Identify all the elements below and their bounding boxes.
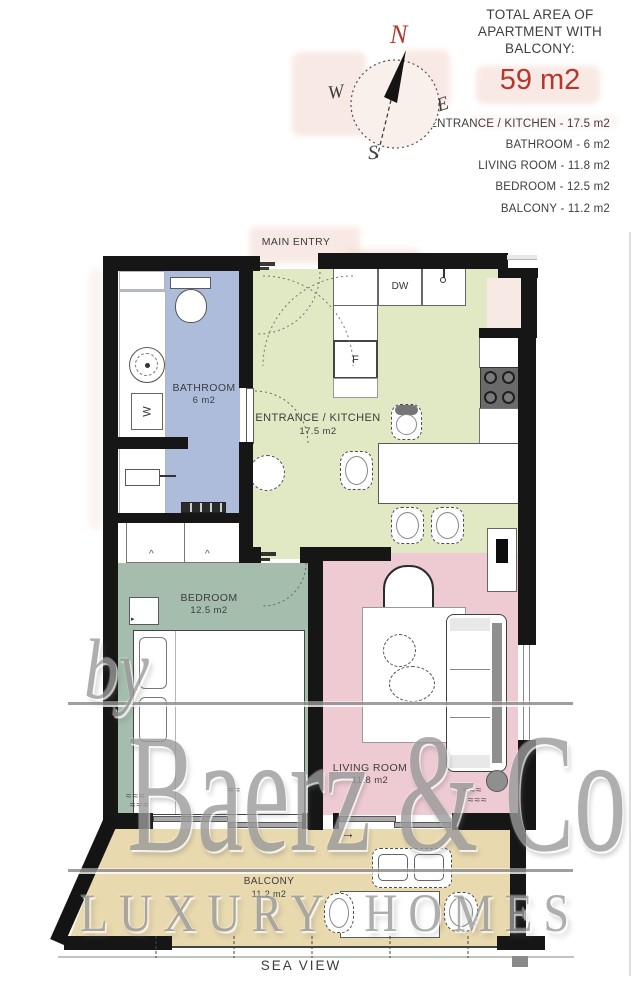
bedroom-door-arc [263, 563, 306, 606]
page-border-line [629, 232, 631, 976]
closet-swing-arc [263, 276, 353, 366]
compass-ring [351, 60, 439, 148]
floorplan-page: TOTAL AREA OF APARTMENT WITH BALCONY: 59… [0, 0, 634, 1000]
watermark-tagline: LUXURY HOMES [50, 886, 611, 940]
watermark-brand: Baerz & Co [127, 708, 533, 878]
bathroom-door-arc [255, 391, 308, 444]
closet-swing-arc [263, 276, 353, 366]
sea-view-label: SEA VIEW [240, 958, 362, 973]
watermark-line [68, 869, 573, 872]
